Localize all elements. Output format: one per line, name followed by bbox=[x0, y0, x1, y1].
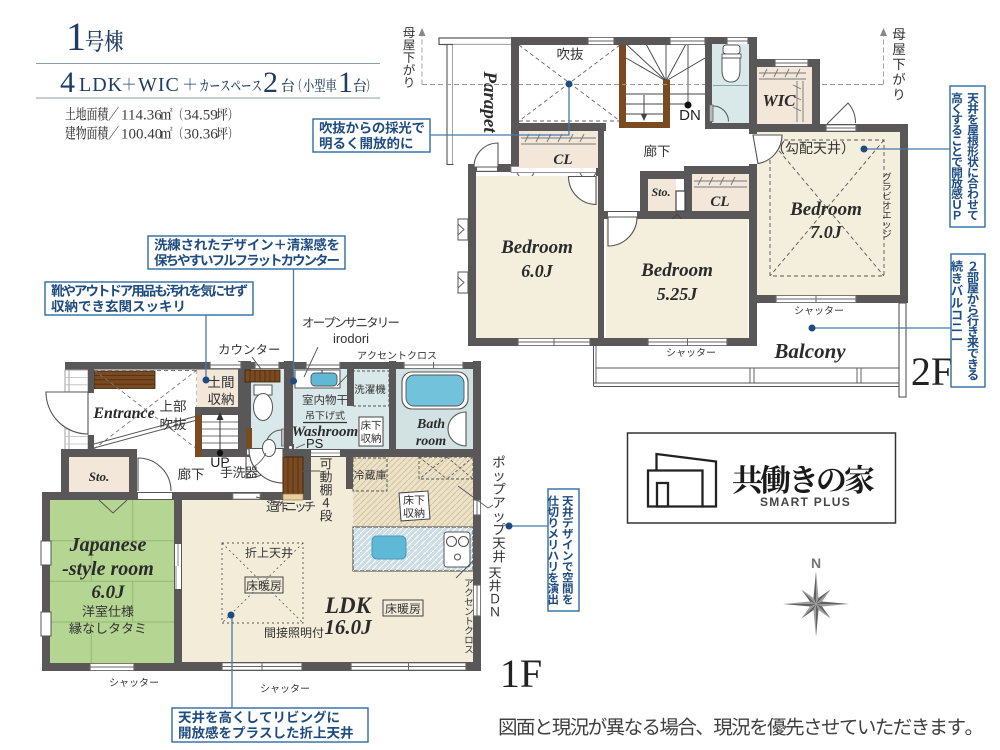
svg-text:SMART PLUS: SMART PLUS bbox=[760, 495, 851, 509]
svg-text:WIC: WIC bbox=[762, 91, 796, 110]
svg-text:2F: 2F bbox=[911, 349, 953, 394]
svg-text:WIC: WIC bbox=[138, 74, 180, 96]
svg-text:4: 4 bbox=[60, 66, 75, 99]
svg-text:6.0J: 6.0J bbox=[521, 261, 554, 281]
svg-text:1: 1 bbox=[338, 66, 353, 99]
svg-text:Bedroom: Bedroom bbox=[640, 260, 713, 281]
svg-text:2: 2 bbox=[263, 66, 278, 99]
svg-text:CL: CL bbox=[553, 152, 572, 168]
svg-text:CL: CL bbox=[710, 194, 729, 210]
svg-text:Sto.: Sto. bbox=[89, 469, 110, 484]
svg-text:100.40: 100.40 bbox=[121, 127, 162, 143]
svg-text:LDK: LDK bbox=[79, 74, 123, 96]
svg-text:Washroom: Washroom bbox=[292, 424, 358, 440]
svg-text:34.59: 34.59 bbox=[184, 108, 218, 124]
svg-text:114.36: 114.36 bbox=[121, 108, 162, 124]
svg-text:irodori: irodori bbox=[333, 331, 369, 346]
svg-text:N: N bbox=[811, 555, 821, 571]
svg-text:-style room: -style room bbox=[62, 558, 154, 580]
svg-text:DN: DN bbox=[679, 107, 701, 124]
svg-text:Balcony: Balcony bbox=[773, 339, 846, 363]
svg-text:30.36: 30.36 bbox=[184, 127, 218, 143]
svg-text:6.0J: 6.0J bbox=[91, 582, 125, 603]
svg-text:1F: 1F bbox=[500, 651, 542, 696]
svg-text:Parapet: Parapet bbox=[479, 70, 500, 133]
svg-text:Japanese: Japanese bbox=[69, 534, 147, 556]
svg-text:Bedroom: Bedroom bbox=[500, 237, 573, 258]
svg-text:Entrance: Entrance bbox=[92, 405, 154, 422]
svg-text:Bath: Bath bbox=[416, 417, 445, 432]
svg-text:Sto.: Sto. bbox=[651, 185, 670, 199]
svg-text:room: room bbox=[416, 434, 446, 449]
svg-text:7.0J: 7.0J bbox=[810, 222, 843, 242]
svg-text:1: 1 bbox=[66, 14, 86, 59]
svg-text:5.25J: 5.25J bbox=[657, 284, 699, 304]
svg-text:Bedroom: Bedroom bbox=[789, 199, 862, 220]
svg-text:16.0J: 16.0J bbox=[324, 615, 373, 639]
